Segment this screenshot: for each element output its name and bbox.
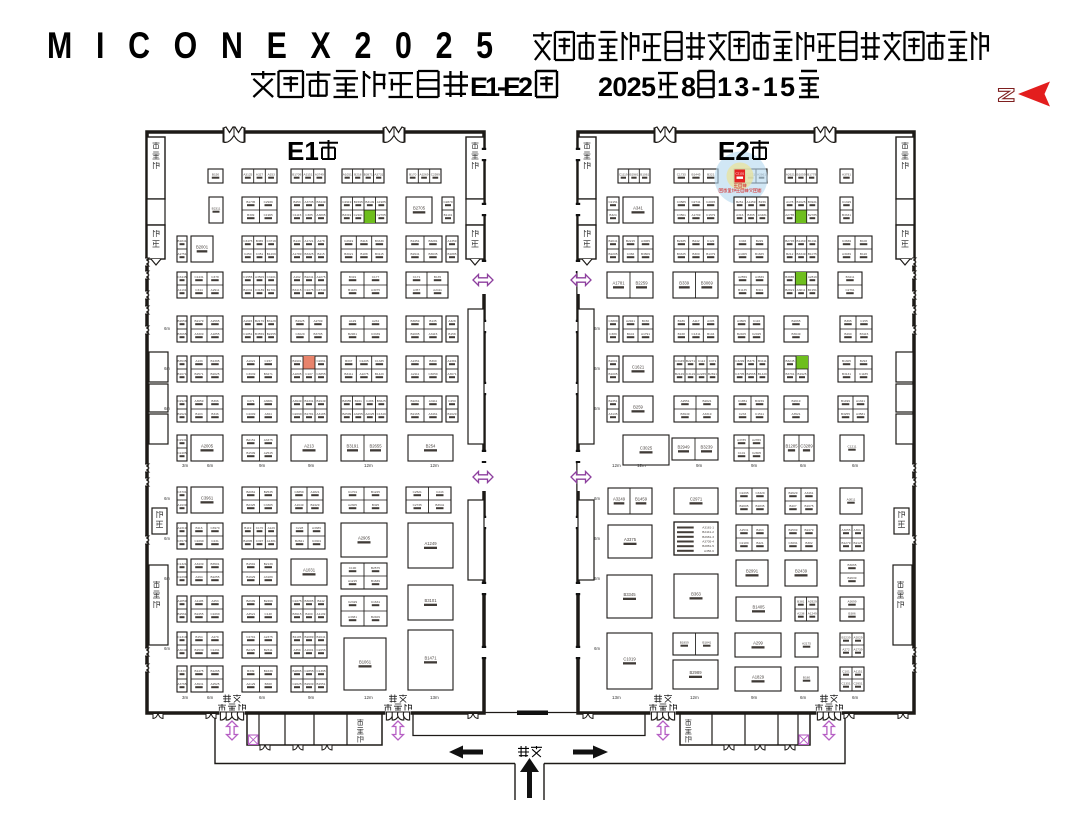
svg-text:C107: C107 bbox=[305, 372, 313, 376]
svg-text:B150: B150 bbox=[642, 319, 650, 323]
svg-text:B3411: B3411 bbox=[758, 359, 767, 363]
svg-text:A341: A341 bbox=[633, 205, 643, 210]
svg-text:C3301: C3301 bbox=[312, 539, 321, 543]
svg-text:C2025: C2025 bbox=[752, 332, 761, 336]
svg-text:C286: C286 bbox=[366, 399, 374, 403]
svg-text:A3765: A3765 bbox=[178, 682, 187, 686]
svg-text:B1195: B1195 bbox=[293, 635, 302, 639]
svg-text:B161: B161 bbox=[355, 399, 363, 403]
svg-text:C2189: C2189 bbox=[739, 541, 748, 545]
svg-text:B2165: B2165 bbox=[411, 412, 420, 416]
svg-text:B3325: B3325 bbox=[305, 252, 314, 256]
svg-text:B1061: B1061 bbox=[359, 659, 372, 664]
svg-text:B399: B399 bbox=[429, 359, 437, 363]
svg-text:B2599: B2599 bbox=[342, 412, 351, 416]
svg-text:A2411: A2411 bbox=[433, 288, 442, 292]
svg-text:C3339: C3339 bbox=[371, 332, 380, 336]
svg-text:B337: B337 bbox=[345, 359, 353, 363]
svg-text:B3255: B3255 bbox=[841, 412, 850, 416]
svg-text:B251: B251 bbox=[736, 200, 744, 204]
svg-text:A3681: A3681 bbox=[264, 399, 273, 403]
svg-text:C1579: C1579 bbox=[706, 213, 715, 217]
svg-text:A2921: A2921 bbox=[626, 319, 635, 323]
svg-text:A1799: A1799 bbox=[692, 213, 701, 217]
svg-text:B1395: B1395 bbox=[211, 359, 220, 363]
svg-text:B3345: B3345 bbox=[623, 592, 636, 597]
svg-text:B1641: B1641 bbox=[317, 635, 326, 639]
svg-text:A213: A213 bbox=[304, 443, 314, 448]
svg-text:A279: A279 bbox=[211, 635, 219, 639]
svg-text:A2381: A2381 bbox=[448, 359, 457, 363]
svg-text:B1539: B1539 bbox=[195, 648, 204, 652]
svg-text:C371: C371 bbox=[709, 359, 717, 363]
svg-text:13m: 13m bbox=[430, 695, 439, 700]
svg-text:B1551: B1551 bbox=[317, 682, 326, 686]
svg-text:C3859: C3859 bbox=[294, 490, 303, 494]
svg-text:B2139: B2139 bbox=[264, 562, 273, 566]
svg-text:C2025: C2025 bbox=[292, 682, 301, 686]
svg-text:A2029: A2029 bbox=[854, 636, 863, 640]
svg-text:B2939: B2939 bbox=[305, 682, 314, 686]
svg-text:A2359: A2359 bbox=[752, 438, 761, 442]
svg-text:B2629: B2629 bbox=[789, 491, 798, 495]
svg-text:A2545: A2545 bbox=[264, 451, 273, 455]
svg-text:B1925: B1925 bbox=[296, 319, 305, 323]
svg-text:B2255: B2255 bbox=[211, 575, 220, 579]
svg-text:B2261: B2261 bbox=[411, 399, 420, 403]
svg-text:B3871: B3871 bbox=[364, 173, 373, 177]
svg-text:A3509: A3509 bbox=[255, 275, 264, 279]
svg-text:C2329: C2329 bbox=[348, 600, 357, 604]
svg-text:A1829: A1829 bbox=[752, 674, 765, 679]
svg-text:C2705: C2705 bbox=[377, 213, 386, 217]
svg-text:B253: B253 bbox=[293, 200, 301, 204]
svg-text:B1379: B1379 bbox=[706, 252, 715, 256]
svg-text:A2351: A2351 bbox=[411, 359, 420, 363]
svg-text:A3439: A3439 bbox=[195, 562, 204, 566]
svg-text:12m: 12m bbox=[612, 463, 621, 468]
svg-text:A2559: A2559 bbox=[738, 275, 747, 279]
svg-text:B2535: B2535 bbox=[264, 490, 273, 494]
svg-text:C2101: C2101 bbox=[735, 172, 744, 176]
svg-text:B135: B135 bbox=[434, 275, 442, 279]
svg-text:C2295: C2295 bbox=[739, 491, 748, 495]
svg-text:C397: C397 bbox=[256, 539, 264, 543]
svg-text:B1279: B1279 bbox=[842, 541, 851, 545]
svg-text:A294: A294 bbox=[195, 575, 203, 579]
svg-text:B2821: B2821 bbox=[785, 288, 794, 292]
svg-text:B1839: B1839 bbox=[371, 579, 380, 583]
svg-text:B1901: B1901 bbox=[293, 359, 302, 363]
svg-text:A2265: A2265 bbox=[697, 372, 706, 376]
svg-text:B300: B300 bbox=[692, 252, 700, 256]
svg-text:B3149: B3149 bbox=[365, 200, 374, 204]
svg-text:B215: B215 bbox=[317, 252, 325, 256]
svg-text:C177: C177 bbox=[372, 275, 380, 279]
svg-text:C1321: C1321 bbox=[177, 562, 186, 566]
svg-text:B3885: B3885 bbox=[785, 275, 794, 279]
svg-text:B207: B207 bbox=[789, 504, 797, 508]
svg-text:6m: 6m bbox=[164, 496, 170, 501]
svg-text:B170: B170 bbox=[409, 173, 417, 177]
svg-text:A3189: A3189 bbox=[264, 575, 273, 579]
svg-text:C155: C155 bbox=[860, 319, 868, 323]
svg-text:C3705: C3705 bbox=[735, 372, 744, 376]
svg-text:A3151: A3151 bbox=[304, 173, 313, 177]
svg-text:C2061: C2061 bbox=[316, 359, 325, 363]
svg-text:B2619: B2619 bbox=[792, 399, 801, 403]
svg-text:B1885: B1885 bbox=[448, 252, 457, 256]
svg-text:12m: 12m bbox=[637, 463, 646, 468]
svg-text:C3101: C3101 bbox=[267, 275, 276, 279]
svg-text:C2931: C2931 bbox=[177, 438, 186, 442]
svg-text:A327: A327 bbox=[256, 173, 264, 177]
svg-text:6m: 6m bbox=[594, 406, 600, 411]
svg-text:A3731: A3731 bbox=[374, 173, 383, 177]
svg-text:A1821: A1821 bbox=[311, 490, 320, 494]
svg-text:A234: A234 bbox=[372, 319, 380, 323]
svg-text:B2021: B2021 bbox=[703, 399, 712, 403]
svg-text:B259: B259 bbox=[633, 404, 643, 409]
svg-text:A2175: A2175 bbox=[802, 642, 811, 646]
svg-text:A3111: A3111 bbox=[429, 399, 438, 403]
svg-text:13m: 13m bbox=[612, 695, 621, 700]
svg-text:A3049: A3049 bbox=[178, 648, 187, 652]
svg-text:B368: B368 bbox=[265, 682, 273, 686]
svg-text:C2845: C2845 bbox=[706, 200, 715, 204]
svg-text:B2239: B2239 bbox=[842, 636, 851, 640]
svg-text:C1019: C1019 bbox=[623, 656, 636, 661]
svg-text:B2001: B2001 bbox=[609, 359, 618, 363]
svg-text:A3011: A3011 bbox=[847, 498, 856, 502]
svg-text:B3131: B3131 bbox=[842, 372, 851, 376]
svg-text:C171: C171 bbox=[413, 275, 421, 279]
svg-text:B1509: B1509 bbox=[246, 451, 255, 455]
svg-text:B1471: B1471 bbox=[424, 655, 437, 660]
svg-text:B154: B154 bbox=[195, 635, 203, 639]
svg-text:C333: C333 bbox=[178, 669, 186, 673]
svg-text:B1499: B1499 bbox=[841, 399, 850, 403]
svg-text:B2061: B2061 bbox=[246, 490, 255, 494]
svg-text:B3501: B3501 bbox=[211, 562, 220, 566]
svg-text:B3115: B3115 bbox=[860, 332, 869, 336]
svg-text:B3809: B3809 bbox=[641, 252, 650, 256]
svg-text:C1069: C1069 bbox=[210, 612, 219, 616]
svg-text:B3069: B3069 bbox=[701, 280, 714, 285]
svg-text:C1395: C1395 bbox=[316, 669, 325, 673]
svg-text:B381: B381 bbox=[797, 600, 805, 604]
svg-text:A2709: A2709 bbox=[314, 319, 323, 323]
svg-text:B1629: B1629 bbox=[246, 575, 255, 579]
svg-text:B1625: B1625 bbox=[797, 200, 806, 204]
svg-text:C3579: C3579 bbox=[177, 539, 186, 543]
svg-text:C2919: C2919 bbox=[342, 200, 351, 204]
svg-text:6m: 6m bbox=[800, 695, 807, 700]
svg-text:A3895: A3895 bbox=[317, 213, 326, 217]
svg-text:A1649: A1649 bbox=[295, 503, 304, 507]
svg-text:C389: C389 bbox=[609, 332, 617, 336]
svg-text:A2739: A2739 bbox=[854, 648, 863, 652]
svg-text:B1445: B1445 bbox=[692, 173, 701, 177]
svg-text:A133: A133 bbox=[195, 359, 203, 363]
svg-text:B2691: B2691 bbox=[708, 372, 717, 376]
svg-text:A3181-1: A3181-1 bbox=[702, 526, 714, 530]
svg-text:B1135: B1135 bbox=[738, 288, 747, 292]
svg-text:A2751: A2751 bbox=[178, 252, 187, 256]
svg-text:B2065: B2065 bbox=[792, 319, 801, 323]
svg-text:A2025: A2025 bbox=[365, 412, 374, 416]
svg-text:B1709: B1709 bbox=[292, 173, 301, 177]
svg-text:C1851: C1851 bbox=[738, 399, 747, 403]
svg-text:C1431: C1431 bbox=[194, 275, 203, 279]
svg-text:B3641: B3641 bbox=[435, 503, 444, 507]
svg-text:A3065: A3065 bbox=[641, 239, 650, 243]
svg-text:B1805: B1805 bbox=[243, 539, 252, 543]
svg-text:B150: B150 bbox=[212, 173, 220, 177]
svg-text:A3381: A3381 bbox=[348, 615, 357, 619]
svg-text:C1211: C1211 bbox=[848, 445, 857, 449]
svg-text:C1329: C1329 bbox=[842, 200, 851, 204]
svg-text:B3319: B3319 bbox=[342, 213, 351, 217]
svg-text:A3269: A3269 bbox=[420, 173, 429, 177]
svg-text:B3535: B3535 bbox=[178, 359, 187, 363]
svg-text:B212: B212 bbox=[786, 252, 794, 256]
svg-text:C2099: C2099 bbox=[292, 412, 301, 416]
svg-text:B1735: B1735 bbox=[246, 200, 255, 204]
svg-text:6m: 6m bbox=[594, 366, 600, 371]
svg-text:A2785: A2785 bbox=[785, 213, 794, 217]
svg-text:C2855: C2855 bbox=[304, 669, 313, 673]
svg-text:C3119: C3119 bbox=[686, 372, 695, 376]
svg-text:C3189: C3189 bbox=[255, 288, 264, 292]
svg-text:B1331: B1331 bbox=[305, 399, 314, 403]
svg-text:A129: A129 bbox=[349, 319, 357, 323]
svg-text:C243: C243 bbox=[436, 490, 444, 494]
svg-text:B3921: B3921 bbox=[808, 200, 817, 204]
svg-text:B221: B221 bbox=[756, 541, 764, 545]
svg-text:C2599: C2599 bbox=[431, 173, 440, 177]
svg-text:C2741: C2741 bbox=[691, 200, 700, 204]
svg-text:A192: A192 bbox=[293, 275, 301, 279]
svg-text:B100: B100 bbox=[860, 239, 868, 243]
svg-text:B2241: B2241 bbox=[305, 275, 314, 279]
svg-text:B1925: B1925 bbox=[798, 372, 807, 376]
svg-text:B3449: B3449 bbox=[317, 200, 326, 204]
svg-text:C3029: C3029 bbox=[295, 332, 304, 336]
svg-text:B143: B143 bbox=[293, 239, 301, 243]
svg-text:B365: B365 bbox=[747, 213, 755, 217]
svg-text:6m: 6m bbox=[594, 646, 600, 651]
svg-text:A3671: A3671 bbox=[448, 372, 457, 376]
svg-text:C3329: C3329 bbox=[755, 491, 764, 495]
svg-text:B3239: B3239 bbox=[700, 444, 713, 449]
svg-text:B339: B339 bbox=[247, 669, 255, 673]
svg-text:B2311: B2311 bbox=[264, 648, 273, 652]
svg-text:A3619: A3619 bbox=[854, 528, 863, 532]
svg-text:C3719: C3719 bbox=[267, 239, 276, 243]
svg-text:B325: B325 bbox=[372, 503, 380, 507]
svg-text:B3949: B3949 bbox=[681, 412, 690, 416]
svg-text:C1075: C1075 bbox=[304, 288, 313, 292]
svg-text:A3375: A3375 bbox=[624, 537, 637, 542]
svg-text:A2305: A2305 bbox=[348, 503, 357, 507]
svg-text:A2551: A2551 bbox=[681, 399, 690, 403]
svg-text:C3475: C3475 bbox=[243, 239, 252, 243]
svg-text:C3961: C3961 bbox=[201, 495, 214, 500]
svg-text:B346: B346 bbox=[211, 412, 219, 416]
svg-text:3m: 3m bbox=[182, 463, 189, 468]
svg-text:B2129: B2129 bbox=[675, 372, 684, 376]
svg-text:C2791: C2791 bbox=[246, 635, 255, 639]
svg-text:C122: C122 bbox=[707, 239, 715, 243]
svg-text:B3635: B3635 bbox=[429, 252, 438, 256]
svg-text:E1-E2: E1-E2 bbox=[470, 72, 533, 102]
svg-text:B2745: B2745 bbox=[785, 239, 794, 243]
svg-text:B263: B263 bbox=[756, 528, 764, 532]
svg-text:B1269: B1269 bbox=[267, 252, 276, 256]
svg-text:8: 8 bbox=[681, 72, 696, 102]
svg-text:B1475: B1475 bbox=[195, 669, 204, 673]
svg-text:B3191: B3191 bbox=[346, 443, 359, 448]
svg-text:B2455: B2455 bbox=[195, 612, 204, 616]
svg-text:C346: C346 bbox=[739, 239, 747, 243]
svg-text:C1649: C1649 bbox=[377, 412, 386, 416]
svg-text:B1429: B1429 bbox=[758, 372, 767, 376]
svg-text:A1031: A1031 bbox=[303, 567, 316, 572]
svg-text:9m: 9m bbox=[696, 463, 703, 468]
svg-text:A3791: A3791 bbox=[842, 173, 851, 177]
svg-text:A3255: A3255 bbox=[354, 412, 363, 416]
svg-text:B1949: B1949 bbox=[317, 399, 326, 403]
svg-text:A3521: A3521 bbox=[792, 412, 801, 416]
svg-text:A3375: A3375 bbox=[264, 438, 273, 442]
svg-text:B1285: B1285 bbox=[785, 443, 798, 448]
svg-text:C2521: C2521 bbox=[413, 490, 422, 494]
svg-text:C2009: C2009 bbox=[246, 412, 255, 416]
svg-text:C344: C344 bbox=[195, 288, 203, 292]
svg-text:A1781: A1781 bbox=[612, 280, 625, 285]
svg-text:C190: C190 bbox=[349, 566, 357, 570]
svg-text:6m: 6m bbox=[259, 695, 266, 700]
svg-text:C3951: C3951 bbox=[853, 682, 862, 686]
svg-text:C1335: C1335 bbox=[375, 359, 384, 363]
svg-text:C1119: C1119 bbox=[619, 173, 628, 177]
svg-text:B1671: B1671 bbox=[178, 372, 187, 376]
svg-text:A1855: A1855 bbox=[211, 332, 220, 336]
svg-text:B396: B396 bbox=[211, 399, 219, 403]
svg-text:B1639: B1639 bbox=[264, 669, 273, 673]
svg-text:B168: B168 bbox=[678, 332, 686, 336]
svg-text:C101: C101 bbox=[738, 451, 746, 455]
svg-text:B2409: B2409 bbox=[371, 615, 380, 619]
svg-text:A3931: A3931 bbox=[195, 682, 204, 686]
svg-text:B2025: B2025 bbox=[211, 372, 220, 376]
svg-text:C231: C231 bbox=[211, 539, 219, 543]
svg-text:B395: B395 bbox=[844, 319, 852, 323]
svg-text:B242: B242 bbox=[317, 599, 325, 603]
svg-text:B2479: B2479 bbox=[805, 528, 814, 532]
svg-text:6m: 6m bbox=[164, 366, 170, 371]
svg-text:C250: C250 bbox=[448, 399, 456, 403]
svg-text:A2319: A2319 bbox=[178, 526, 187, 530]
svg-text:B2439: B2439 bbox=[795, 568, 808, 573]
svg-text:A357: A357 bbox=[413, 288, 421, 292]
svg-text:C3445: C3445 bbox=[675, 359, 684, 363]
svg-text:B104: B104 bbox=[707, 332, 715, 336]
svg-text:C233: C233 bbox=[739, 412, 747, 416]
svg-text:C1185: C1185 bbox=[859, 372, 868, 376]
svg-text:B2949: B2949 bbox=[677, 444, 690, 449]
svg-text:A2111: A2111 bbox=[411, 372, 420, 376]
svg-text:B1075: B1075 bbox=[808, 252, 817, 256]
svg-text:C3855: C3855 bbox=[316, 372, 325, 376]
svg-text:C1851: C1851 bbox=[243, 332, 252, 336]
svg-text:A1215: A1215 bbox=[348, 579, 357, 583]
svg-text:C3561: C3561 bbox=[677, 213, 686, 217]
svg-text:B1841: B1841 bbox=[702, 641, 711, 645]
svg-text:A1131: A1131 bbox=[178, 288, 187, 292]
svg-text:9m: 9m bbox=[308, 695, 315, 700]
svg-text:A3749: A3749 bbox=[315, 173, 324, 177]
svg-text:B2205: B2205 bbox=[609, 252, 618, 256]
svg-text:A2531: A2531 bbox=[740, 528, 749, 532]
svg-text:B2561: B2561 bbox=[178, 612, 187, 616]
svg-text:A299: A299 bbox=[753, 640, 763, 645]
svg-text:A1985: A1985 bbox=[377, 200, 386, 204]
svg-text:B1779: B1779 bbox=[807, 173, 816, 177]
svg-text:B2179: B2179 bbox=[255, 319, 264, 323]
svg-text:C1631: C1631 bbox=[371, 600, 380, 604]
svg-text:B2989: B2989 bbox=[689, 670, 702, 675]
svg-text:6m: 6m bbox=[207, 695, 214, 700]
svg-text:A328: A328 bbox=[448, 319, 456, 323]
svg-text:B1701: B1701 bbox=[267, 288, 276, 292]
svg-text:C1511: C1511 bbox=[755, 412, 764, 416]
svg-text:A1939: A1939 bbox=[178, 503, 187, 507]
svg-text:6m: 6m bbox=[164, 536, 170, 541]
svg-text:B2005: B2005 bbox=[740, 504, 749, 508]
svg-text:9m: 9m bbox=[308, 463, 315, 468]
svg-text:B1265: B1265 bbox=[211, 669, 220, 673]
svg-text:6m: 6m bbox=[594, 536, 600, 541]
svg-text:B242: B242 bbox=[692, 239, 700, 243]
svg-text:A1601: A1601 bbox=[305, 648, 314, 652]
svg-text:C2735: C2735 bbox=[413, 503, 422, 507]
svg-text:A1021: A1021 bbox=[246, 359, 255, 363]
svg-text:B1031: B1031 bbox=[243, 288, 252, 292]
svg-text:B3021: B3021 bbox=[344, 252, 353, 256]
svg-text:B386: B386 bbox=[848, 612, 856, 616]
svg-text:A2929: A2929 bbox=[808, 600, 817, 604]
svg-text:B1005: B1005 bbox=[609, 372, 618, 376]
svg-text:C1075: C1075 bbox=[292, 599, 301, 603]
svg-text:A316: A316 bbox=[736, 213, 744, 217]
svg-text:B1405: B1405 bbox=[752, 604, 765, 609]
svg-text:C2879: C2879 bbox=[443, 200, 452, 204]
svg-text:B3411: B3411 bbox=[344, 372, 353, 376]
svg-text:B3795: B3795 bbox=[314, 332, 323, 336]
svg-text:A1151: A1151 bbox=[854, 670, 863, 674]
svg-text:A3075: A3075 bbox=[371, 288, 380, 292]
svg-text:C3585: C3585 bbox=[677, 200, 686, 204]
svg-text:B3955: B3955 bbox=[342, 399, 351, 403]
svg-text:B1595: B1595 bbox=[354, 200, 363, 204]
svg-text:B3411: B3411 bbox=[846, 275, 855, 279]
svg-text:C1351: C1351 bbox=[841, 682, 850, 686]
svg-text:C116: C116 bbox=[753, 319, 760, 323]
svg-text:B2125: B2125 bbox=[854, 541, 863, 545]
svg-text:B1591: B1591 bbox=[246, 562, 255, 566]
